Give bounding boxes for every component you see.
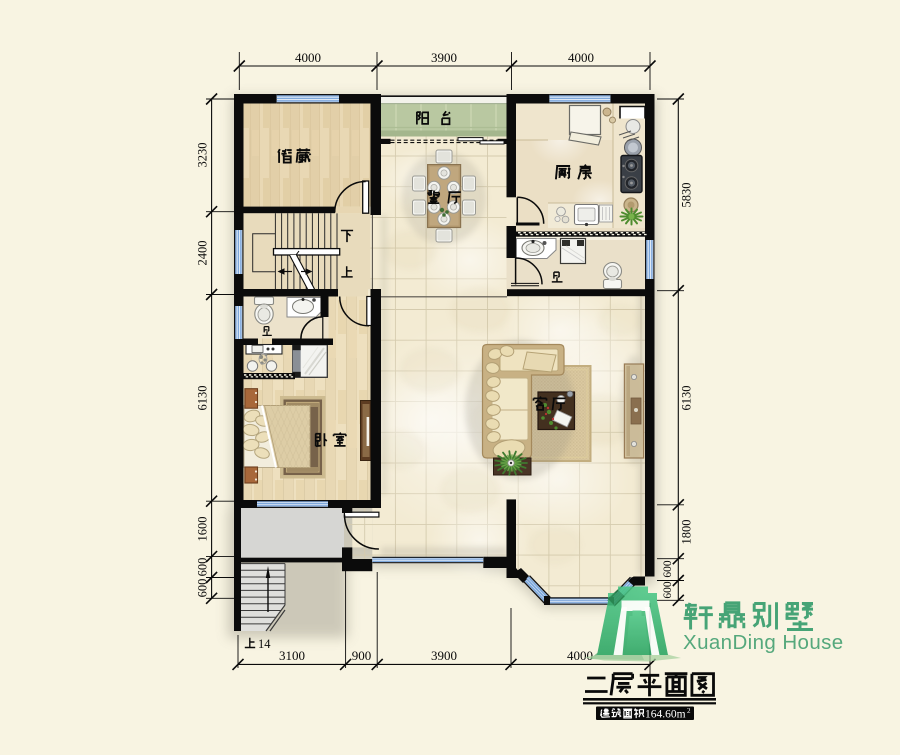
svg-text:4000: 4000 — [568, 50, 594, 65]
svg-text:3100: 3100 — [279, 648, 305, 663]
svg-text:3900: 3900 — [431, 648, 457, 663]
svg-text:164.60m: 164.60m — [645, 709, 686, 721]
svg-text:6130: 6130 — [680, 386, 694, 411]
svg-text:14: 14 — [258, 637, 271, 651]
svg-text:600: 600 — [196, 579, 210, 598]
svg-text:4000: 4000 — [295, 50, 321, 65]
svg-text:1800: 1800 — [680, 520, 694, 545]
svg-text:6130: 6130 — [196, 386, 210, 411]
svg-text:4000: 4000 — [567, 648, 593, 663]
svg-text:600: 600 — [662, 560, 674, 578]
svg-text:2: 2 — [687, 707, 691, 715]
svg-text:3230: 3230 — [196, 143, 210, 168]
svg-text:XuanDing House: XuanDing House — [683, 631, 844, 654]
svg-text:900: 900 — [352, 648, 372, 663]
svg-text:600: 600 — [662, 581, 674, 599]
svg-text:600: 600 — [196, 558, 210, 577]
svg-text:1600: 1600 — [196, 517, 210, 542]
svg-text:2400: 2400 — [196, 241, 210, 266]
svg-text:5830: 5830 — [680, 183, 694, 208]
svg-text:3900: 3900 — [431, 50, 457, 65]
